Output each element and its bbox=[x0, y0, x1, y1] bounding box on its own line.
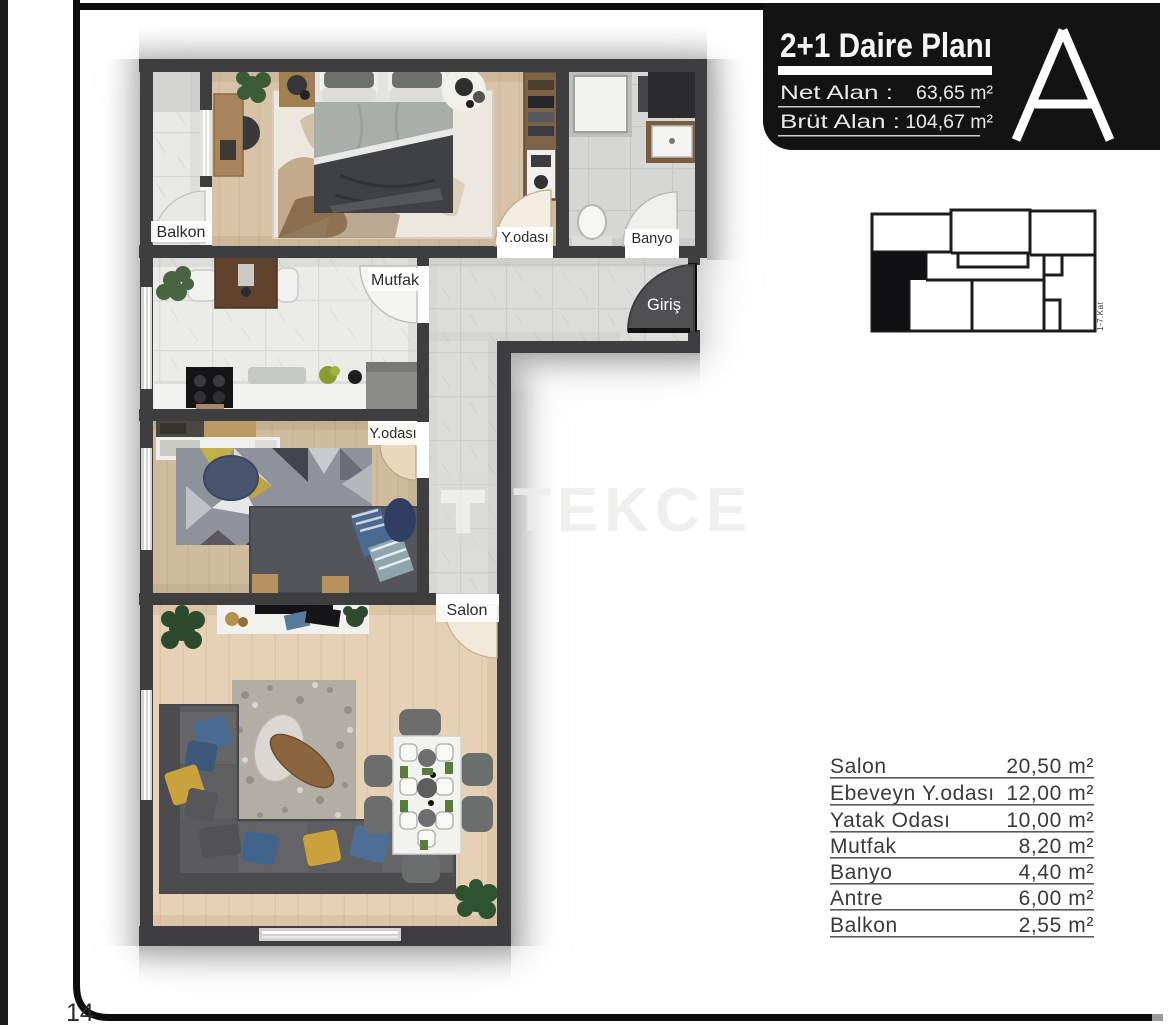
svg-text:2,55 m²: 2,55 m² bbox=[1019, 914, 1094, 937]
svg-text:63,65 m²: 63,65 m² bbox=[916, 82, 993, 104]
svg-text:TEKCE: TEKCE bbox=[513, 476, 753, 545]
svg-text:6,00 m²: 6,00 m² bbox=[1019, 887, 1094, 910]
svg-text:Banyo: Banyo bbox=[830, 861, 893, 884]
svg-text:Giriş: Giriş bbox=[647, 296, 681, 314]
svg-text:Y.odası: Y.odası bbox=[501, 230, 548, 246]
svg-text:8,20 m²: 8,20 m² bbox=[1019, 835, 1094, 858]
svg-text:Y.odası: Y.odası bbox=[369, 426, 416, 442]
svg-text:Salon: Salon bbox=[830, 755, 887, 778]
svg-text:Banyo: Banyo bbox=[631, 231, 672, 247]
svg-text:1-7.Kat: 1-7.Kat bbox=[1096, 301, 1105, 331]
svg-text:Ebeveyn Y.odası: Ebeveyn Y.odası bbox=[830, 782, 995, 805]
svg-text:Balkon: Balkon bbox=[157, 224, 206, 241]
svg-text:Yatak Odası: Yatak Odası bbox=[830, 809, 951, 832]
svg-text:14: 14 bbox=[66, 999, 94, 1025]
svg-text:10,00 m²: 10,00 m² bbox=[1006, 809, 1094, 832]
svg-text:Balkon: Balkon bbox=[830, 914, 898, 937]
svg-text:Salon: Salon bbox=[447, 602, 488, 619]
svg-text:12,00 m²: 12,00 m² bbox=[1006, 782, 1094, 805]
svg-text:Mutfak: Mutfak bbox=[371, 272, 420, 289]
svg-text:104,67 m²: 104,67 m² bbox=[905, 111, 993, 133]
svg-text:20,50 m²: 20,50 m² bbox=[1006, 755, 1094, 778]
svg-text:2+1 Daire Planı: 2+1 Daire Planı bbox=[780, 27, 992, 65]
svg-text:Mutfak: Mutfak bbox=[830, 835, 897, 858]
svg-text:Antre: Antre bbox=[830, 887, 883, 910]
svg-text:Net Alan :: Net Alan : bbox=[780, 82, 893, 104]
svg-text:Brüt Alan :: Brüt Alan : bbox=[780, 111, 900, 133]
svg-text:4,40 m²: 4,40 m² bbox=[1019, 861, 1094, 884]
